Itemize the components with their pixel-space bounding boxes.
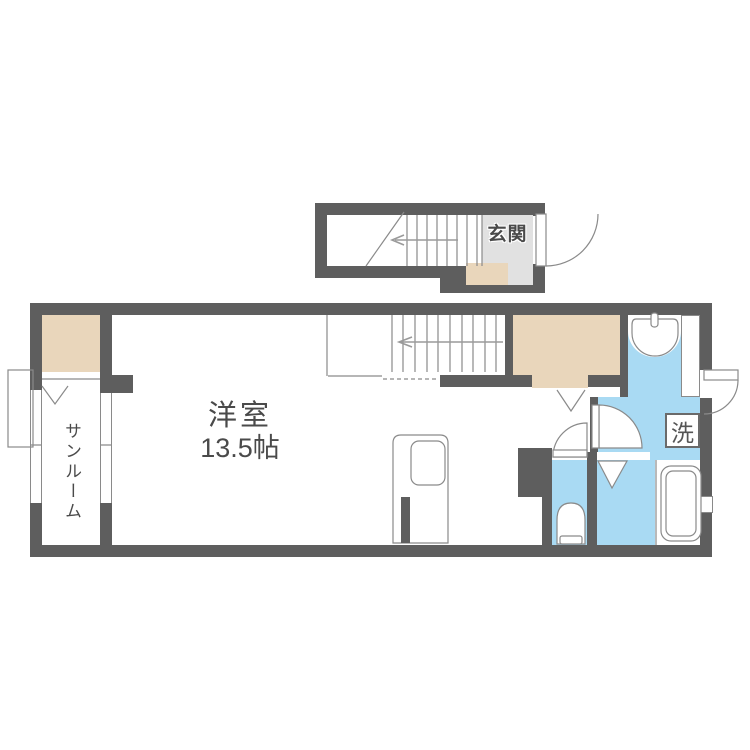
under-stair-wall <box>440 375 532 387</box>
closet-washroom-wall <box>620 315 628 397</box>
toilet-left-wall <box>542 497 552 545</box>
entrance-step <box>466 263 508 285</box>
left-closet-sliding-door <box>42 372 100 385</box>
sunroom-label: サンルーム <box>56 414 84 529</box>
right-closet <box>513 315 620 375</box>
entrance-door-opening <box>533 216 545 264</box>
entrance-door-icon <box>536 214 598 266</box>
left-closet-side-wall <box>100 315 112 378</box>
toilet-right-wall <box>587 452 597 545</box>
toilet-floor <box>552 460 587 545</box>
entrance-label: 玄関 <box>482 219 533 246</box>
main-room-size: 13.5帖 <box>140 433 340 464</box>
toilet-left-wall-block <box>518 448 552 497</box>
shower-floor <box>597 460 655 545</box>
sunroom-corner-wall <box>100 375 133 393</box>
washroom-floor-left <box>598 397 628 460</box>
washing-machine-space: 洗 <box>665 413 700 448</box>
sunroom-left-window <box>30 390 42 503</box>
main-room-name: 洋室 <box>140 400 340 433</box>
sunroom-lower-wall <box>100 503 112 545</box>
washroom-left-wall <box>590 397 598 452</box>
right-closet-extension <box>532 375 588 388</box>
shower-doorway <box>597 452 650 460</box>
side-door-opening <box>700 370 712 398</box>
washroom-cabinet <box>681 315 700 397</box>
closet-bottom-wall <box>588 375 620 387</box>
main-room-label: 洋室 13.5帖 <box>140 400 340 464</box>
washing-machine-label: 洗 <box>671 414 694 448</box>
bath-window <box>700 496 713 513</box>
toilet-doorway <box>552 452 587 460</box>
upper-stair-hall-floor <box>327 215 482 266</box>
left-closet <box>42 315 100 372</box>
floor-plan: 洗 <box>0 0 750 750</box>
sunroom-right-window <box>100 393 112 503</box>
